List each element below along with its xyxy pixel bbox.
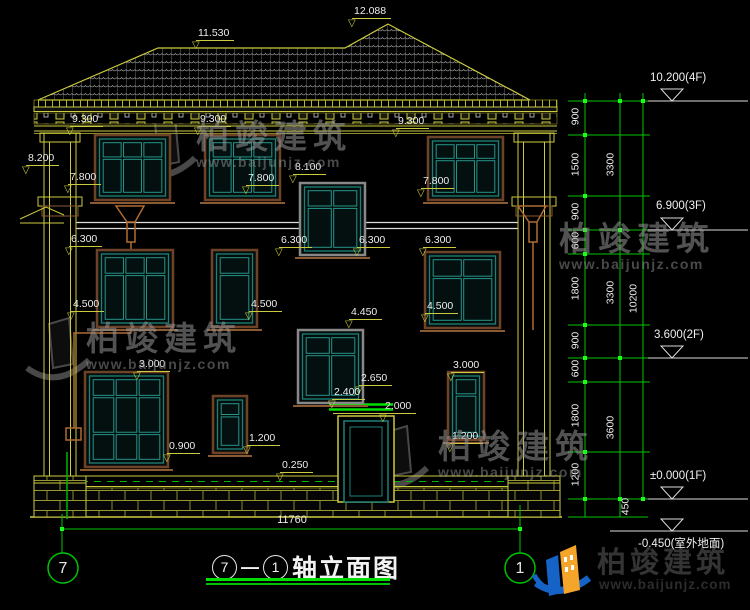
elevation-label: 11.530 [196,28,234,41]
elevation-label: 0.250 [280,460,313,473]
total-width-dimension: 11760 [262,514,322,526]
level-marker: ±0.000(1F) [650,470,706,482]
level-marker: 6.900(3F) [656,200,706,212]
elevation-label: 6.300 [357,235,390,248]
elevation-label: 0.900 [167,441,200,454]
elevation-label: 2.000 [383,401,416,414]
level-marker: 3.600(2F) [654,329,704,341]
elevation-label: 3.000 [137,359,170,372]
dimension-value: 900 [571,93,582,141]
elevation-label: 3.000 [451,360,484,373]
axis-number: 7 [48,560,78,578]
watermark: 柏竣建筑www.baijunjz.com [196,120,352,170]
title-underline [206,578,390,581]
dimension-value: 3300 [606,269,617,317]
dimension-value: 10200 [629,275,640,323]
elevation-label: 6.300 [423,235,456,248]
elevation-label: 1.200 [247,433,280,446]
cad-elevation-drawing: 11760 7 — 1 轴立面图 柏竣建筑 www.baijunjz.com 9… [0,0,750,610]
level-marker: -0.450(室外地面) [638,535,724,551]
elevation-label: 4.500 [425,301,458,314]
watermark-name: 柏竣建筑 [559,222,715,256]
axis-number: 1 [505,560,535,578]
axis-circle-start: 7 [212,555,237,580]
elevation-label: 6.300 [279,235,312,248]
dimension-value: 1200 [571,450,582,498]
dimension-value: 450 [621,483,632,531]
elevation-label: 8.200 [26,153,59,166]
logo-website: www.baijunjz.com [599,577,732,592]
dimension-value: 1800 [571,392,582,440]
text-overlay: 11760 7 — 1 轴立面图 柏竣建筑 www.baijunjz.com 9… [0,0,750,610]
elevation-label: 9.300 [70,114,103,127]
axis-circle-end: 1 [263,555,288,580]
elevation-label: 2.650 [359,373,392,386]
title-dash: — [241,557,259,578]
dimension-value: 3300 [606,140,617,188]
elevation-label: 7.800 [421,176,454,189]
elevation-label: 1.200 [450,431,483,444]
dimension-value: 600 [571,217,582,265]
elevation-label: 6.300 [69,234,102,247]
elevation-label: 8.100 [293,162,326,175]
dimension-value: 1500 [571,140,582,188]
watermark-url: www.baijunjz.com [559,256,715,272]
elevation-label: 2.400 [332,387,365,400]
elevation-label: 4.450 [349,307,382,320]
dimension-value: 3600 [606,403,617,451]
elevation-label: 7.800 [246,173,279,186]
watermark-name: 柏竣建筑 [86,322,242,356]
watermark-url: www.baijunjz.com [196,154,352,170]
elevation-label: 4.500 [249,299,282,312]
title-underline-2 [206,583,390,585]
watermark: 柏竣建筑www.baijunjz.com [559,222,715,272]
elevation-label: 4.500 [71,299,104,312]
elevation-label: 9.300 [396,116,429,129]
level-marker: 10.200(4F) [650,72,706,84]
elevation-label: 7.800 [68,172,101,185]
dimension-value: 1800 [571,264,582,312]
elevation-label: 9.300 [198,114,231,127]
elevation-label: 12.088 [352,6,391,19]
dimension-value: 600 [571,345,582,393]
